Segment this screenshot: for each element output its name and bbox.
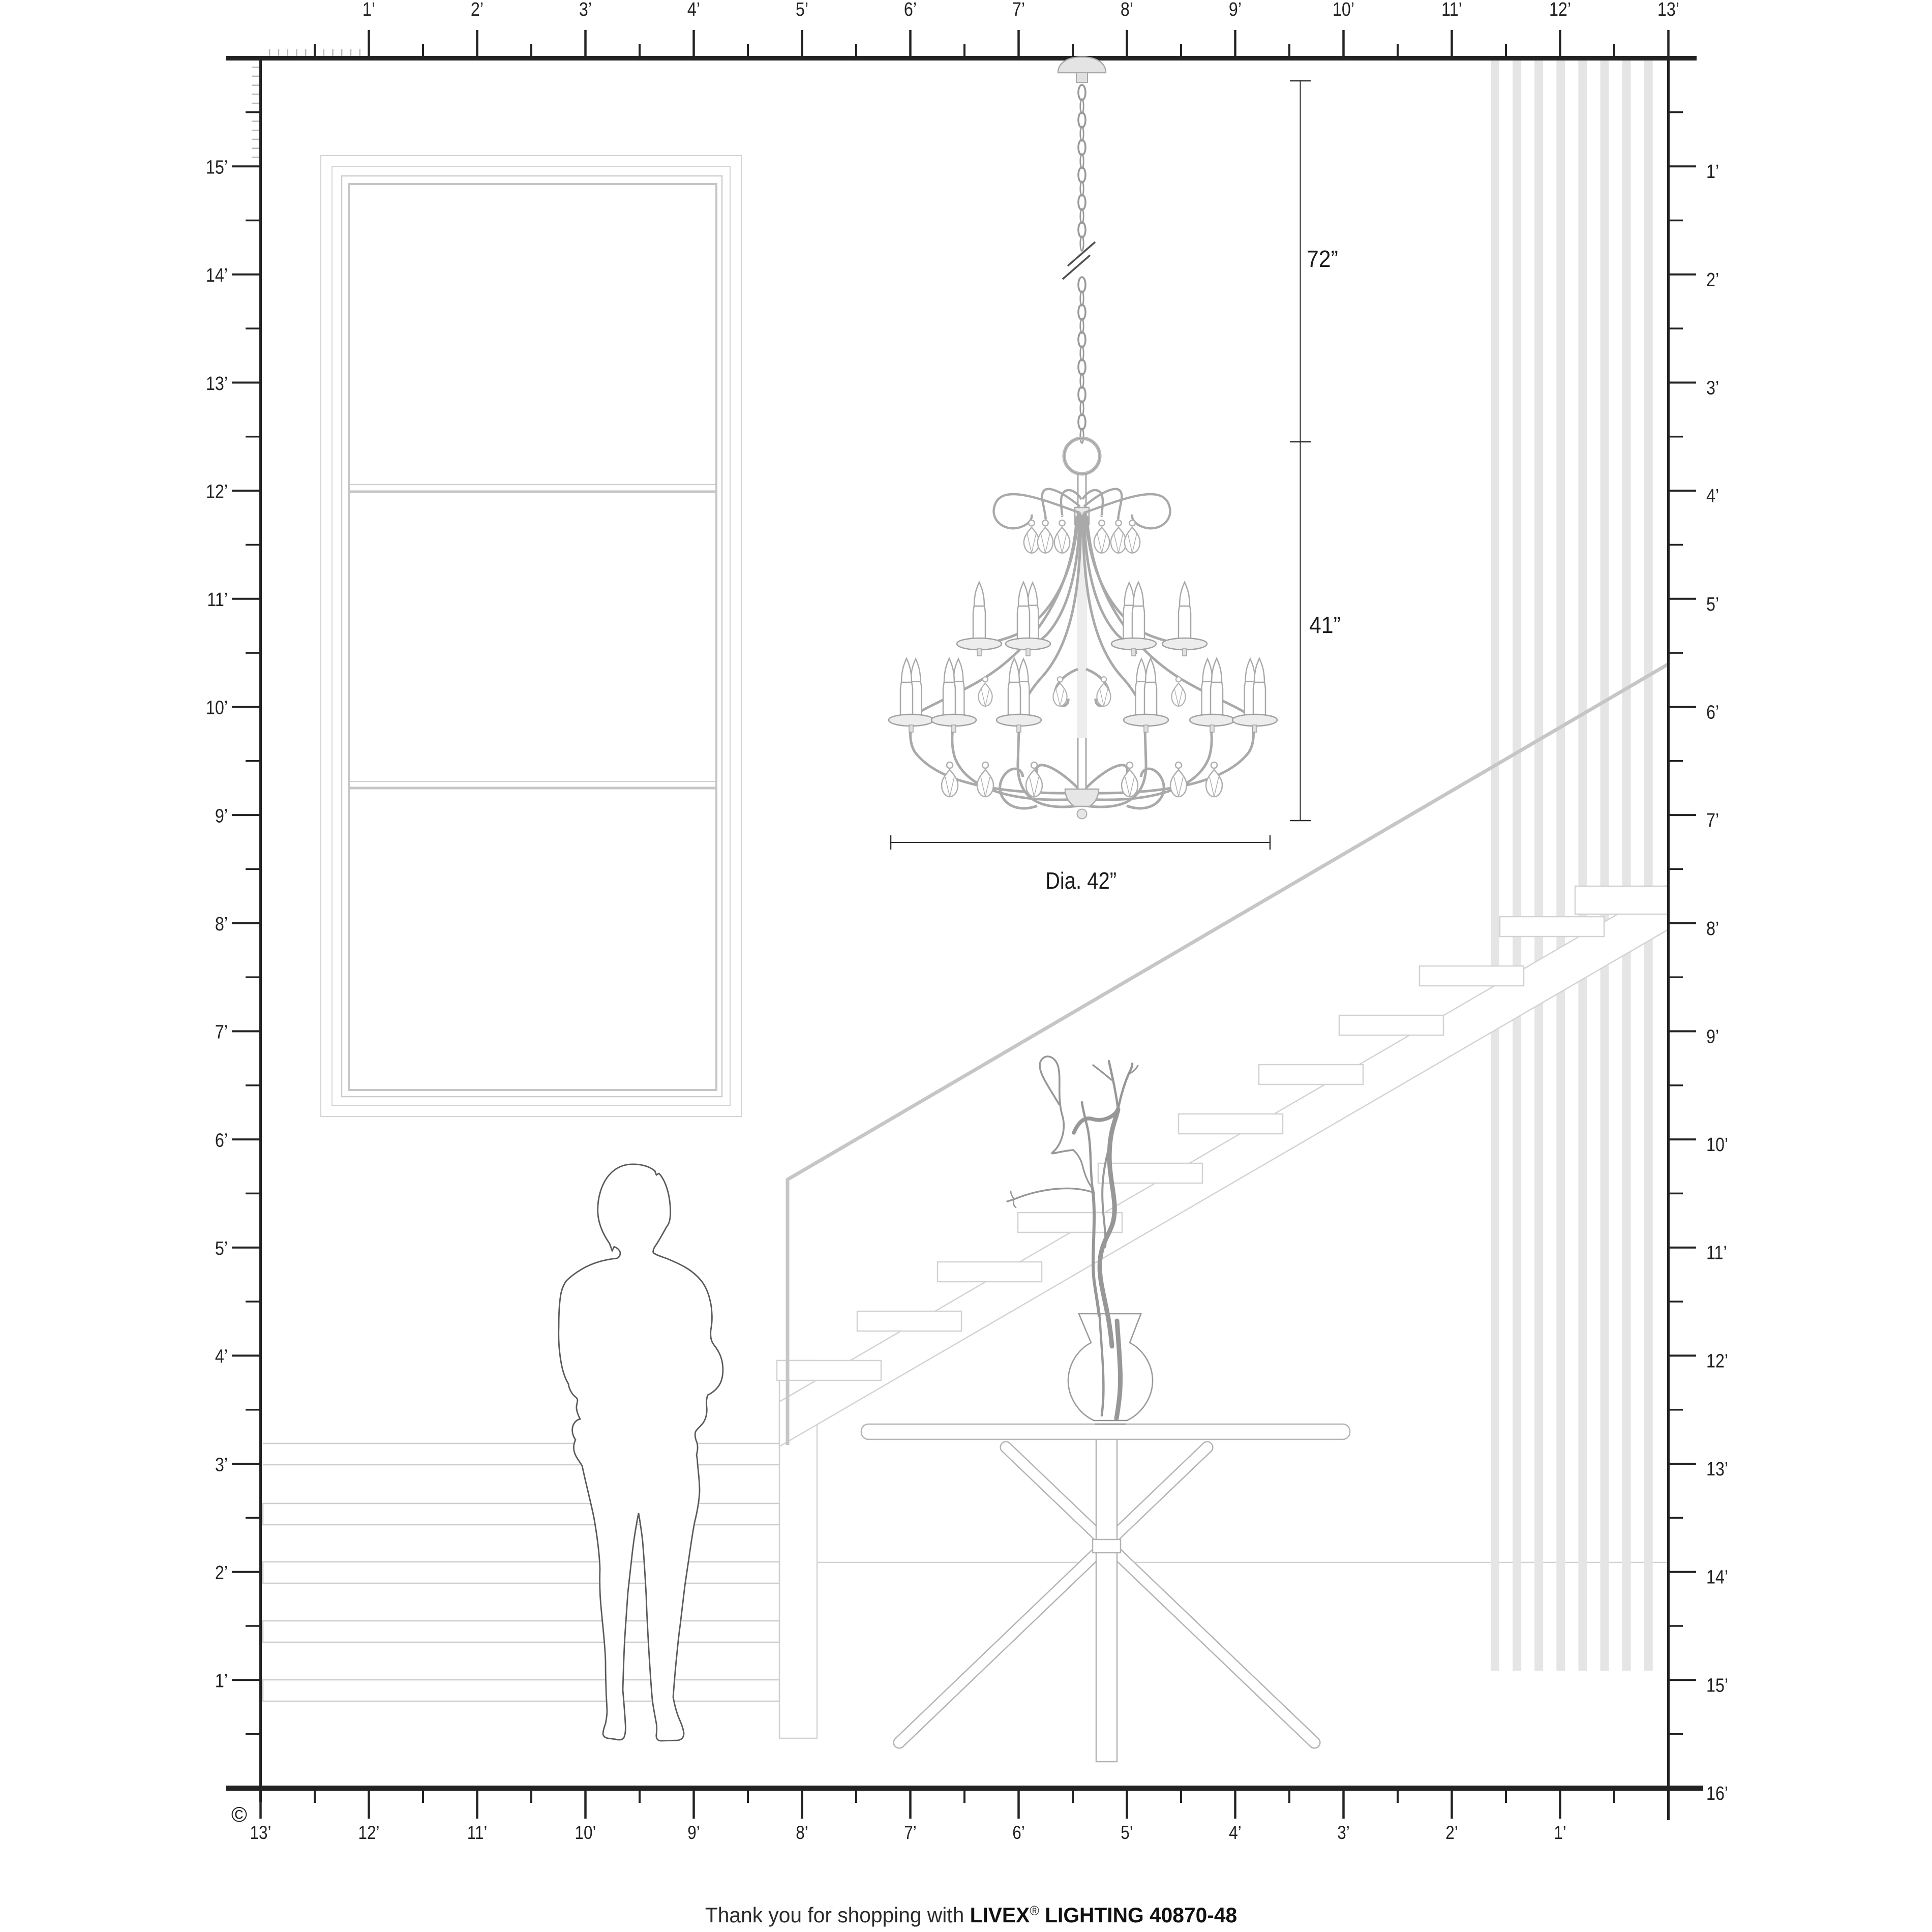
svg-text:13’: 13’ [206, 373, 228, 394]
svg-text:2’: 2’ [1445, 1823, 1458, 1844]
svg-text:14’: 14’ [206, 265, 228, 286]
svg-text:12’: 12’ [1706, 1350, 1728, 1372]
svg-text:©: © [231, 1802, 247, 1826]
svg-text:12’: 12’ [206, 481, 228, 502]
svg-text:7’: 7’ [1012, 0, 1025, 20]
svg-text:4’: 4’ [1706, 486, 1719, 507]
svg-text:41”: 41” [1309, 613, 1341, 639]
svg-text:9’: 9’ [687, 1823, 700, 1844]
svg-text:Thank you for shopping with LI: Thank you for shopping with LIVEX® LIGHT… [705, 1903, 1237, 1927]
svg-text:15’: 15’ [1706, 1675, 1728, 1696]
svg-text:14’: 14’ [1706, 1566, 1728, 1588]
svg-text:3’: 3’ [1337, 1823, 1349, 1844]
svg-text:72”: 72” [1307, 247, 1338, 273]
svg-text:8’: 8’ [1706, 918, 1719, 939]
svg-text:8’: 8’ [1121, 0, 1133, 20]
svg-text:1’: 1’ [215, 1670, 228, 1692]
svg-text:10’: 10’ [206, 697, 228, 718]
svg-text:11’: 11’ [207, 589, 228, 611]
svg-text:6’: 6’ [215, 1130, 228, 1151]
svg-text:13’: 13’ [1706, 1459, 1728, 1480]
svg-text:13’: 13’ [1657, 0, 1679, 20]
svg-text:12’: 12’ [1549, 0, 1571, 20]
svg-text:3’: 3’ [1706, 377, 1719, 399]
svg-text:5’: 5’ [1706, 593, 1719, 615]
svg-text:10’: 10’ [1706, 1134, 1728, 1156]
svg-text:8’: 8’ [215, 914, 228, 935]
svg-text:5’: 5’ [796, 0, 808, 20]
svg-text:9’: 9’ [215, 805, 228, 827]
svg-text:2’: 2’ [215, 1562, 228, 1584]
svg-text:12’: 12’ [358, 1823, 380, 1844]
svg-text:5’: 5’ [1121, 1823, 1133, 1844]
svg-text:1’: 1’ [363, 0, 375, 20]
svg-text:Dia. 42”: Dia. 42” [1045, 868, 1116, 894]
svg-text:6’: 6’ [904, 0, 917, 20]
svg-text:4’: 4’ [215, 1346, 228, 1367]
svg-text:10’: 10’ [1333, 0, 1354, 20]
svg-text:7’: 7’ [215, 1021, 228, 1043]
svg-text:7’: 7’ [1706, 810, 1719, 831]
svg-text:3’: 3’ [215, 1454, 228, 1475]
svg-text:3’: 3’ [579, 0, 592, 20]
svg-text:4’: 4’ [687, 0, 700, 20]
svg-text:4’: 4’ [1229, 1823, 1241, 1844]
svg-text:10’: 10’ [575, 1823, 596, 1844]
svg-text:9’: 9’ [1706, 1026, 1719, 1047]
svg-text:1’: 1’ [1706, 161, 1719, 183]
svg-text:11’: 11’ [467, 1823, 488, 1844]
svg-text:15’: 15’ [206, 157, 228, 178]
svg-text:7’: 7’ [904, 1823, 916, 1844]
svg-text:11’: 11’ [1441, 0, 1462, 20]
svg-text:6’: 6’ [1706, 702, 1719, 723]
svg-text:2’: 2’ [1706, 269, 1719, 290]
svg-text:13’: 13’ [250, 1823, 271, 1844]
svg-text:8’: 8’ [796, 1823, 808, 1844]
svg-text:16’: 16’ [1706, 1783, 1728, 1804]
svg-text:2’: 2’ [471, 0, 484, 20]
svg-text:1’: 1’ [1554, 1823, 1566, 1844]
svg-text:5’: 5’ [215, 1238, 228, 1259]
svg-text:9’: 9’ [1229, 0, 1242, 20]
svg-text:11’: 11’ [1706, 1242, 1727, 1263]
svg-text:6’: 6’ [1012, 1823, 1024, 1844]
